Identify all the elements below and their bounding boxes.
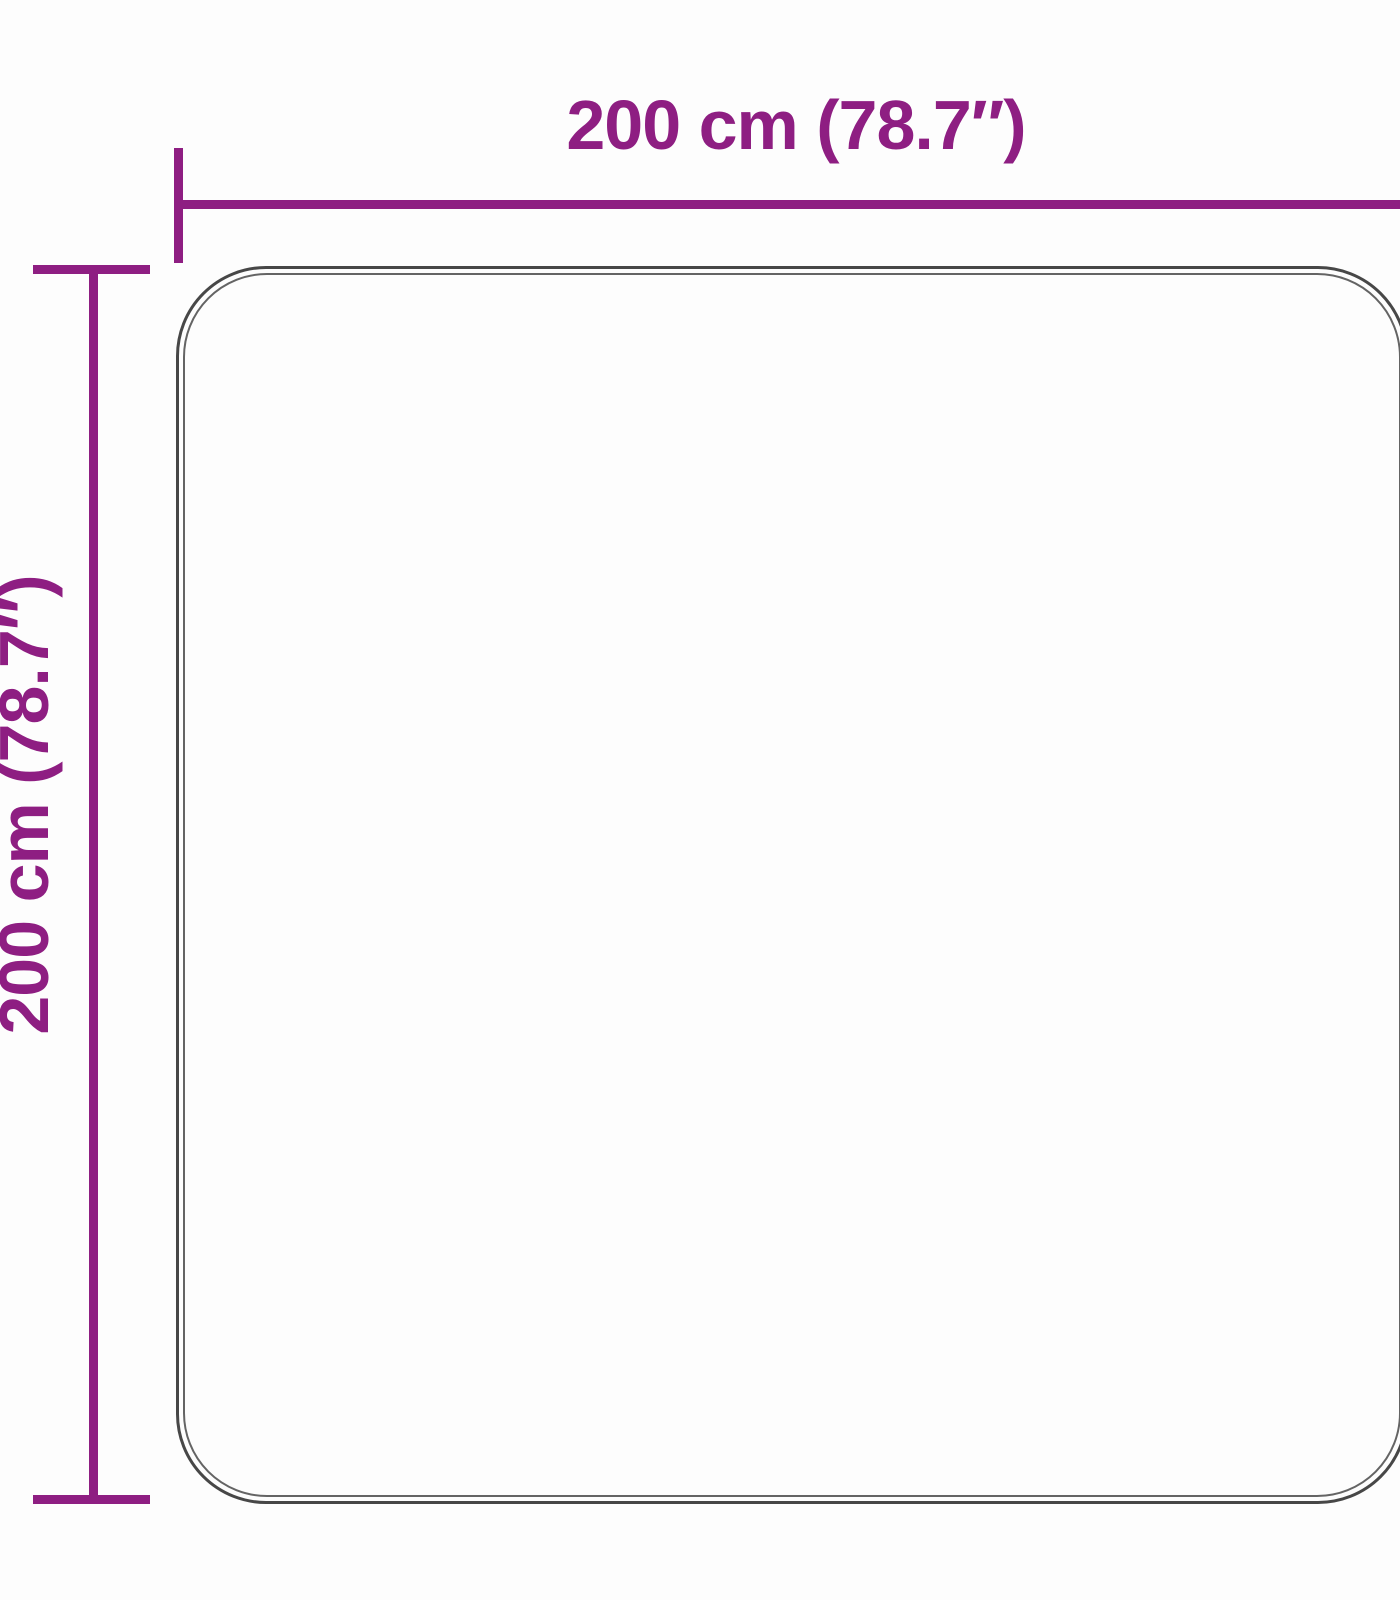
width-dimension-tick-left xyxy=(174,148,183,263)
width-dimension-label: 200 cm (78.7″) xyxy=(561,90,1031,160)
width-dimension-line xyxy=(174,200,1400,209)
dimension-diagram: 200 cm (78.7″) 200 cm (78.7″) xyxy=(0,0,1400,1600)
height-dimension-tick-top xyxy=(33,265,150,274)
height-dimension-label: 200 cm (78.7″) xyxy=(0,570,59,1040)
height-dimension-line xyxy=(89,265,98,1504)
height-dimension-tick-bottom xyxy=(33,1495,150,1504)
rug-outline xyxy=(176,266,1400,1504)
rug-outline-inner-stitch-line xyxy=(183,273,1400,1497)
